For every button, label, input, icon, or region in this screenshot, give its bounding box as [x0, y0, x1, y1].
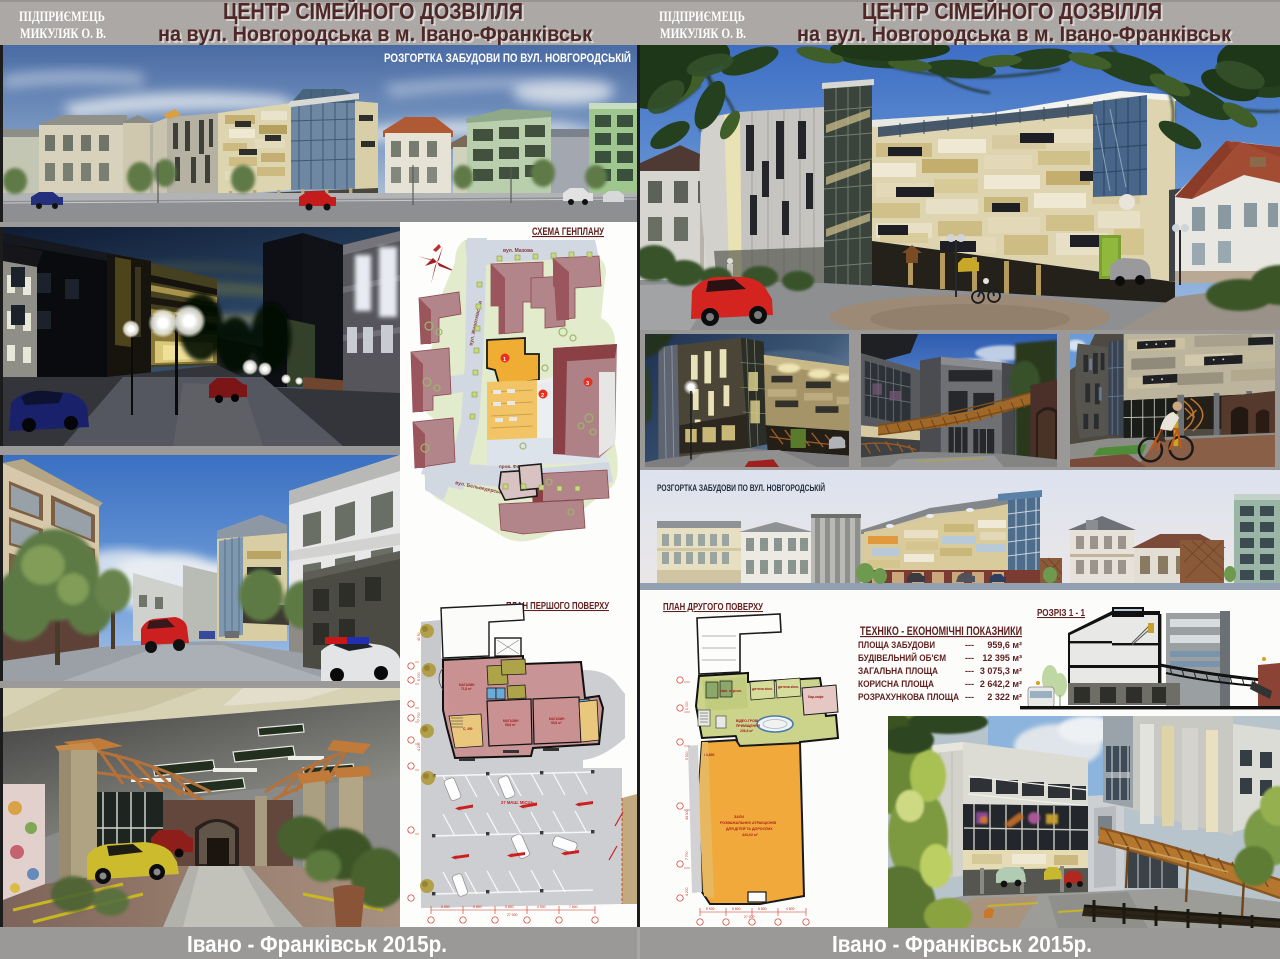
- svg-text:ЦЕНТР СІМЕЙНОГО ДОЗВІЛЛЯ: ЦЕНТР СІМЕЙНОГО ДОЗВІЛЛЯ: [862, 0, 1162, 24]
- svg-text:ЗАЛИ: ЗАЛИ: [734, 815, 744, 819]
- svg-text:---: ---: [965, 653, 974, 663]
- svg-text:4 900: 4 900: [537, 905, 546, 909]
- svg-text:7 700: 7 700: [685, 851, 689, 860]
- svg-text:27 000: 27 000: [507, 913, 517, 917]
- svg-text:40 50: 40 50: [417, 632, 421, 641]
- svg-text:2 322 м²: 2 322 м²: [987, 692, 1022, 702]
- svg-text:2: 2: [541, 393, 544, 399]
- svg-text:3 075,3 м²: 3 075,3 м²: [980, 666, 1022, 676]
- svg-text:КОРИСНА ПЛОЩА: КОРИСНА ПЛОЩА: [858, 679, 934, 689]
- svg-text:ПЛОЩА ЗАБУДОВИ: ПЛОЩА ЗАБУДОВИ: [858, 640, 935, 650]
- svg-text:5 900: 5 900: [706, 907, 715, 911]
- svg-text:МИКУЛЯК О. В.: МИКУЛЯК О. В.: [660, 26, 746, 42]
- svg-text:і 4,800: і 4,800: [704, 753, 714, 757]
- svg-text:ЦЕНТР СІМЕЙНОГО ДОЗВІЛЛЯ: ЦЕНТР СІМЕЙНОГО ДОЗВІЛЛЯ: [223, 0, 523, 24]
- svg-text:12 395 м³: 12 395 м³: [982, 653, 1022, 663]
- svg-text:бар-кафе: бар-кафе: [808, 695, 824, 699]
- svg-text:ДЛЯ ДІТЕЙ ТА ДОРОСЛИХ: ДЛЯ ДІТЕЙ ТА ДОРОСЛИХ: [726, 827, 773, 831]
- svg-text:С, 400: С, 400: [463, 727, 473, 731]
- svg-text:ЗАГАЛЬНА ПЛОЩА: ЗАГАЛЬНА ПЛОЩА: [858, 666, 938, 676]
- svg-text:5 900: 5 900: [441, 905, 450, 909]
- svg-text:РОЗРАХУНКОВА ПЛОЩА: РОЗРАХУНКОВА ПЛОЩА: [858, 692, 959, 702]
- svg-text:дитяча кімн.: дитяча кімн.: [752, 687, 773, 691]
- svg-text:6 000: 6 000: [417, 672, 421, 681]
- svg-text:7 800: 7 800: [569, 905, 578, 909]
- svg-text:РОЗРІЗ 1 - 1: РОЗРІЗ 1 - 1: [1037, 607, 1085, 619]
- svg-text:МИКУЛЯК О. В.: МИКУЛЯК О. В.: [20, 26, 106, 42]
- svg-text:на вул. Новгородська в м. Іва: на вул. Новгородська в м. Івано-Франківс…: [158, 22, 592, 45]
- svg-text:---: ---: [965, 692, 974, 702]
- svg-text:ПІДПРИЄМЕЦЬ: ПІДПРИЄМЕЦЬ: [659, 9, 745, 25]
- svg-text:2 642,2 м²: 2 642,2 м²: [980, 679, 1022, 689]
- svg-text:5 800: 5 800: [505, 905, 514, 909]
- svg-text:99,8 м²: 99,8 м²: [505, 723, 516, 727]
- svg-text:443,02 м²: 443,02 м²: [742, 833, 759, 837]
- svg-text:236,6 м²: 236,6 м²: [740, 729, 754, 733]
- svg-text:4 200: 4 200: [417, 742, 421, 751]
- svg-text:вул. Мазова: вул. Мазова: [503, 248, 533, 254]
- svg-text:---: ---: [965, 679, 974, 689]
- svg-text:5 500: 5 500: [685, 751, 689, 760]
- svg-text:4 800: 4 800: [786, 907, 795, 911]
- svg-text:---: ---: [965, 640, 974, 650]
- svg-text:Івано - Франківськ 2015р.: Івано - Франківськ 2015р.: [832, 931, 1092, 957]
- svg-text:РОЗВАЖАЛЬНИХ АТРАКЦІОНІВ: РОЗВАЖАЛЬНИХ АТРАКЦІОНІВ: [720, 821, 776, 825]
- svg-text:ПІДПРИЄМЕЦЬ: ПІДПРИЄМЕЦЬ: [19, 9, 105, 25]
- svg-text:5 800: 5 800: [758, 907, 767, 911]
- svg-text:ПЛАН ДРУГОГО ПОВЕРХУ: ПЛАН ДРУГОГО ПОВЕРХУ: [663, 601, 763, 613]
- svg-text:на вул. Новгородська в м. Іва: на вул. Новгородська в м. Івано-Франківс…: [797, 22, 1231, 45]
- svg-text:7 700: 7 700: [417, 712, 421, 721]
- svg-text:3: 3: [586, 381, 589, 387]
- svg-text:ВІДЕО-ГРОВІ: ВІДЕО-ГРОВІ: [736, 719, 758, 723]
- svg-text:959,6 м²: 959,6 м²: [987, 640, 1022, 650]
- svg-text:27 000: 27 000: [744, 915, 754, 919]
- svg-text:5 000: 5 000: [685, 701, 689, 710]
- svg-text:РОЗГОРТКА ЗАБУДОВИ ПО ВУЛ. НОВ: РОЗГОРТКА ЗАБУДОВИ ПО ВУЛ. НОВГОРОДСЬКІЙ: [657, 482, 825, 493]
- svg-text:Івано - Франківськ 2015р.: Івано - Франківськ 2015р.: [187, 931, 447, 957]
- svg-text:ТЕХНІКО - ЕКОНОМІЧНІ ПОКАЗНИК: ТЕХНІКО - ЕКОНОМІЧНІ ПОКАЗНИКИ: [860, 626, 1022, 638]
- svg-text:4 200: 4 200: [685, 887, 689, 896]
- svg-text:ПРИМІЩЕННЯ: ПРИМІЩЕННЯ: [736, 724, 761, 728]
- svg-text:дитяча кімн.: дитяча кімн.: [778, 685, 799, 689]
- svg-text:95,8 м²: 95,8 м²: [551, 721, 562, 725]
- svg-text:---: ---: [965, 666, 974, 676]
- svg-text:5 800: 5 800: [473, 905, 482, 909]
- svg-text:5 800: 5 800: [732, 907, 741, 911]
- svg-text:1: 1: [503, 357, 506, 363]
- svg-text:БУДІВЕЛЬНИЙ ОБ'ЄМ: БУДІВЕЛЬНИЙ ОБ'ЄМ: [858, 652, 946, 663]
- svg-text:кімн. персон.: кімн. персон.: [720, 689, 742, 693]
- svg-text:27 МАШ. МІСЦЬ: 27 МАШ. МІСЦЬ: [501, 800, 534, 805]
- svg-text:СХЕМА ГЕНПЛАНУ: СХЕМА ГЕНПЛАНУ: [532, 226, 604, 238]
- svg-text:РОЗГОРТКА ЗАБУДОВИ ПО ВУЛ. НОВ: РОЗГОРТКА ЗАБУДОВИ ПО ВУЛ. НОВГОРОДСЬКІЙ: [384, 50, 631, 65]
- svg-text:44 300: 44 300: [685, 810, 689, 820]
- svg-text:71,8 м²: 71,8 м²: [461, 687, 472, 691]
